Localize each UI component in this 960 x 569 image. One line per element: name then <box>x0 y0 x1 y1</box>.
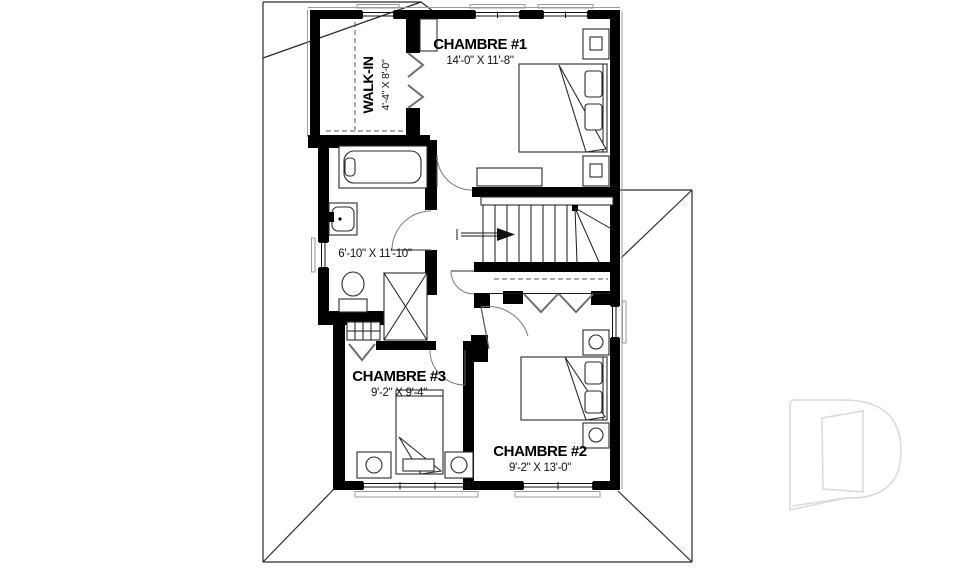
bathroom-dims: 6'-10" X 11'-10" <box>338 248 412 260</box>
chambre3-label: CHAMBRE #3 <box>352 368 446 385</box>
floor-plan-page: CHAMBRE #1 14'-0" X 11'-8" CHAMBRE #2 9'… <box>0 0 960 569</box>
bifold-door-icon <box>559 294 593 312</box>
chambre2-dims: 9'-2" X 13'-0" <box>509 462 571 474</box>
door-bathroom <box>392 211 431 250</box>
window-chambre1-b <box>538 5 593 19</box>
bifold-door-icon <box>408 53 423 77</box>
bifold-door-icon <box>524 294 558 312</box>
bed-chambre3 <box>396 390 443 474</box>
bathtub-icon <box>339 146 427 188</box>
chambre1-dims: 14'-0" X 11'-8" <box>446 55 514 67</box>
window-chambre3-bottom <box>355 482 478 497</box>
door-chambre2 <box>481 306 528 349</box>
walkin-dims: 4'-4" X 8'-0" <box>380 59 392 110</box>
bifold-door-icon <box>408 85 423 108</box>
stair-up-arrow-icon <box>457 228 515 241</box>
bed-chambre2 <box>521 357 607 420</box>
window-chambre2-bottom <box>515 482 600 497</box>
window-chambre1-a <box>470 5 525 19</box>
bathroom-fixtures <box>326 146 427 340</box>
door-chambre1 <box>437 155 472 190</box>
chambre3-dims: 9'-2" X 9'-4" <box>371 387 427 399</box>
floor-plan-drawing: CHAMBRE #1 14'-0" X 11'-8" CHAMBRE #2 9'… <box>0 0 960 569</box>
bifold-door-icon <box>349 344 375 360</box>
d-logo-icon <box>790 400 901 510</box>
linen-shelf-icon <box>347 322 380 340</box>
mechanical-chase-icon <box>384 273 427 340</box>
bed-chambre1 <box>519 64 607 152</box>
walkin-label: WALK-IN <box>360 56 376 113</box>
door-understair <box>451 271 474 294</box>
chambre1-label: CHAMBRE #1 <box>433 36 527 53</box>
toilet-icon <box>339 272 367 312</box>
chambre2-label: CHAMBRE #2 <box>493 443 587 460</box>
staircase <box>457 197 615 262</box>
dresser-chambre1 <box>477 168 542 186</box>
window-chambre2-right <box>611 301 626 343</box>
window-bathroom <box>312 238 329 272</box>
sink-icon <box>326 203 357 235</box>
